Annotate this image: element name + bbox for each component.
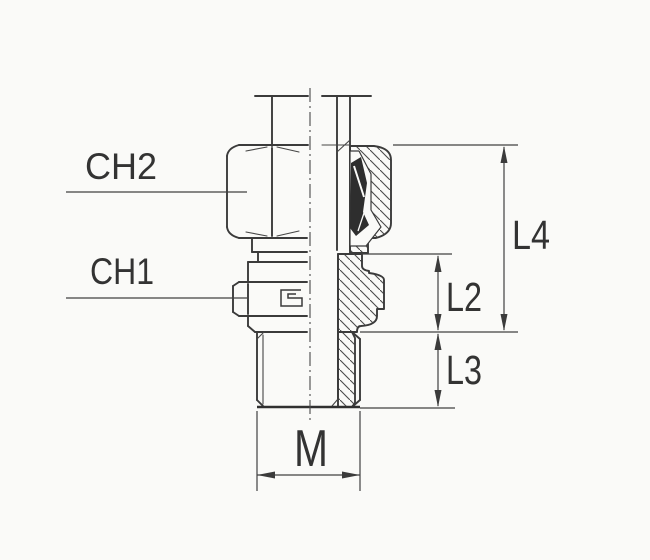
fitting-technical-drawing: L4 L2 L3 M CH2 CH1 [0, 0, 650, 560]
dimension-l2: L2 [435, 255, 483, 331]
tube-chamfer-line [337, 140, 350, 152]
manufacturer-stamp-icon [281, 290, 302, 306]
arrowhead-l3-down [435, 390, 442, 407]
callout-ch2: CH2 [66, 146, 247, 192]
body-section-hatch [338, 254, 384, 332]
nut-chamfer-mark-1 [246, 147, 267, 151]
callout-ch1: CH1 [66, 251, 247, 298]
dimension-m: M [257, 411, 360, 491]
arrowhead-l2-up [435, 255, 442, 272]
nut-chamfer-mark-2 [277, 147, 299, 152]
arrowhead-l3-up [435, 333, 442, 350]
dimension-l4: L4 [501, 146, 551, 331]
hex-chamfer-top [233, 282, 239, 286]
arrowhead-m-left [257, 472, 275, 479]
nut-ch2-external [227, 145, 308, 252]
dimension-l3: L3 [435, 333, 483, 407]
body-ch1-external [233, 252, 307, 332]
arrowhead-l2-down [435, 314, 442, 331]
callout-label-ch1: CH1 [90, 251, 154, 292]
collar-chamfer [248, 326, 255, 332]
nut-corner-bottom-left [227, 227, 239, 238]
arrowhead-l4-up [501, 146, 508, 163]
dimension-label-m: M [294, 420, 328, 478]
dimension-label-l3: L3 [446, 347, 482, 393]
dimension-label-l2: L2 [446, 274, 482, 320]
nut-corner-top-left [227, 145, 239, 156]
callout-label-ch2: CH2 [85, 146, 157, 187]
dimension-label-l4: L4 [512, 212, 550, 258]
nut-ch2-section [322, 145, 391, 253]
nut-chamfer-mark-4 [277, 231, 299, 236]
drawing-canvas: L4 L2 L3 M CH2 CH1 [0, 0, 650, 560]
stud-section-hatch [338, 332, 355, 407]
hex-chamfer-bottom [233, 312, 239, 316]
arrowhead-l4-down [501, 314, 508, 331]
nut-chamfer-mark-3 [246, 232, 267, 236]
arrowhead-m-right [342, 472, 360, 479]
body-section [332, 254, 384, 407]
